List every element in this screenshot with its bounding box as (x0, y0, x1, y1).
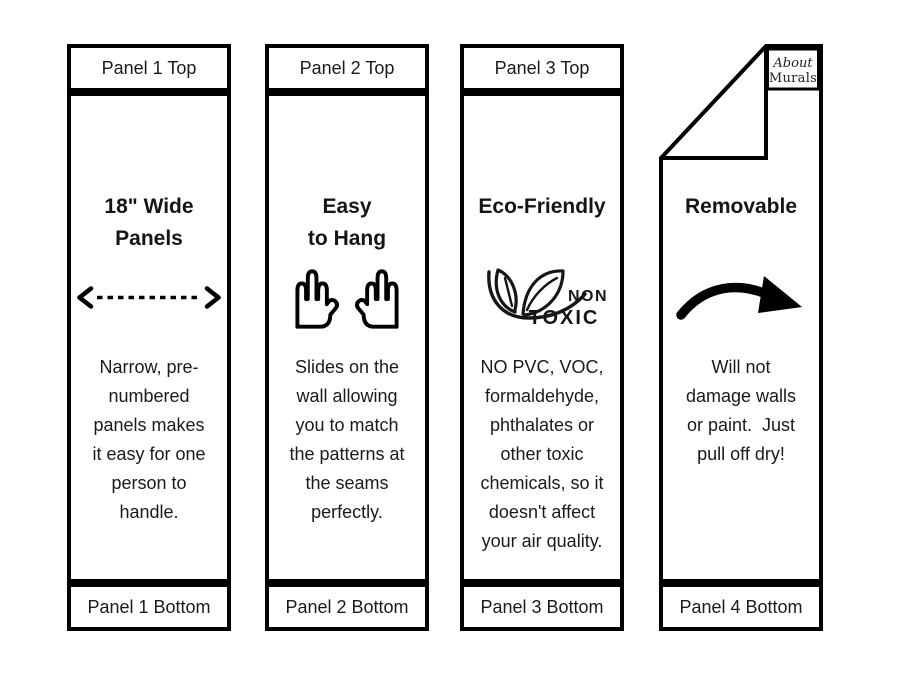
panel-1: Panel 1 Top 18" Wide Panels Narrow, pre-… (67, 44, 231, 631)
curved-swoosh-arrow-icon (676, 270, 806, 328)
panel-4-bottom-box: Panel 4 Bottom (659, 583, 823, 631)
panel-4: About Murals Removable Will not damage w… (659, 44, 823, 631)
panel-4-text: Will not damage walls or paint. Just pul… (663, 353, 819, 469)
horizontal-dashed-double-arrow-icon (74, 285, 224, 310)
left-hand-icon (287, 266, 339, 332)
panel-1-body: 18" Wide Panels Narrow, pre- numbered pa… (67, 92, 231, 583)
panel-2-body: Easy to Hang Slides on the wall allowing… (265, 92, 429, 583)
panel-2-title: Easy to Hang (269, 191, 425, 255)
non-toxic-label-top: NON (558, 287, 618, 307)
panel-1-text: Narrow, pre- numbered panels makes it ea… (71, 353, 227, 527)
panel-2-bottom-box: Panel 2 Bottom (265, 583, 429, 631)
panel-1-icon-row (71, 285, 227, 310)
panel-4-bottom-label: Panel 4 Bottom (679, 597, 802, 618)
panel-2-top-label: Panel 2 Top (300, 58, 395, 79)
brand-logo-about: About (766, 56, 820, 71)
panel-3-bottom-label: Panel 3 Bottom (480, 597, 603, 618)
panel-3-body: Eco-Friendly NON TOXIC NO PVC, VOC, form… (460, 92, 624, 583)
panel-3-bottom-box: Panel 3 Bottom (460, 583, 624, 631)
panel-3-title: Eco-Friendly (464, 191, 620, 223)
brand-logo-murals: Murals (766, 71, 820, 86)
panel-1-bottom-label: Panel 1 Bottom (87, 597, 210, 618)
panel-3: Panel 3 Top Eco-Friendly NON TOXIC NO PV… (460, 44, 624, 631)
folded-wallpaper-sheet-outline (659, 44, 823, 631)
brand-logo: About Murals (766, 56, 820, 86)
panel-3-top-box: Panel 3 Top (460, 44, 624, 92)
non-toxic-label-bottom: TOXIC (467, 307, 661, 329)
right-hand-icon (355, 266, 407, 332)
panel-3-text: NO PVC, VOC, formaldehyde, phthalates or… (464, 353, 620, 556)
panel-1-title: 18" Wide Panels (71, 191, 227, 255)
panel-1-top-label: Panel 1 Top (102, 58, 197, 79)
panel-1-top-box: Panel 1 Top (67, 44, 231, 92)
panel-2-icon-row (269, 266, 425, 332)
panel-4-title: Removable (659, 191, 823, 223)
panel-2-top-box: Panel 2 Top (265, 44, 429, 92)
panel-4-icon-row (659, 270, 823, 328)
panel-1-bottom-box: Panel 1 Bottom (67, 583, 231, 631)
panel-3-top-label: Panel 3 Top (495, 58, 590, 79)
panel-2-text: Slides on the wall allowing you to match… (269, 353, 425, 527)
panel-2: Panel 2 Top Easy to Hang Slides on the w… (265, 44, 429, 631)
panel-2-bottom-label: Panel 2 Bottom (285, 597, 408, 618)
